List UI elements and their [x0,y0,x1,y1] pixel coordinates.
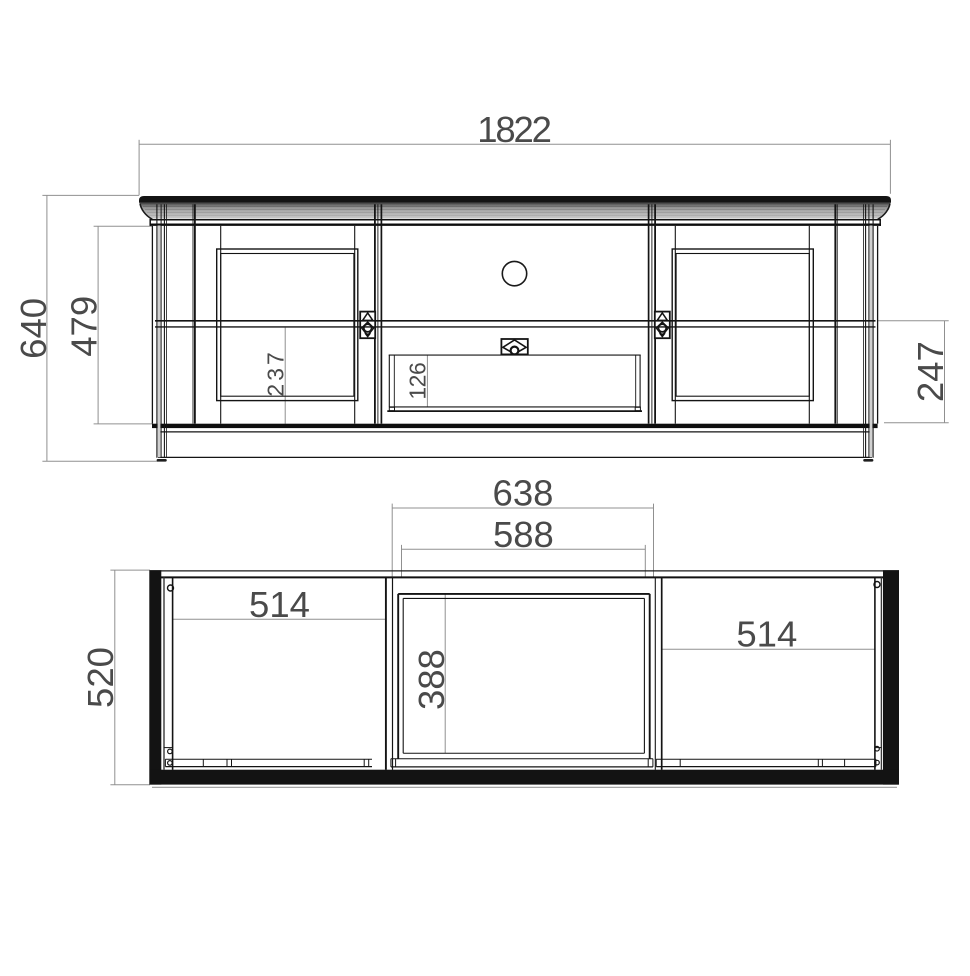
svg-text:247: 247 [910,341,951,402]
svg-text:1822: 1822 [477,109,550,150]
svg-text:588: 588 [493,514,554,555]
svg-text:638: 638 [493,473,554,514]
svg-text:640: 640 [13,298,54,359]
svg-text:514: 514 [249,584,310,625]
svg-text:520: 520 [80,647,121,708]
svg-text:514: 514 [736,614,797,655]
svg-text:479: 479 [64,296,105,357]
svg-text:126: 126 [405,363,431,400]
svg-text:388: 388 [411,649,452,710]
svg-text:237: 237 [263,349,289,396]
